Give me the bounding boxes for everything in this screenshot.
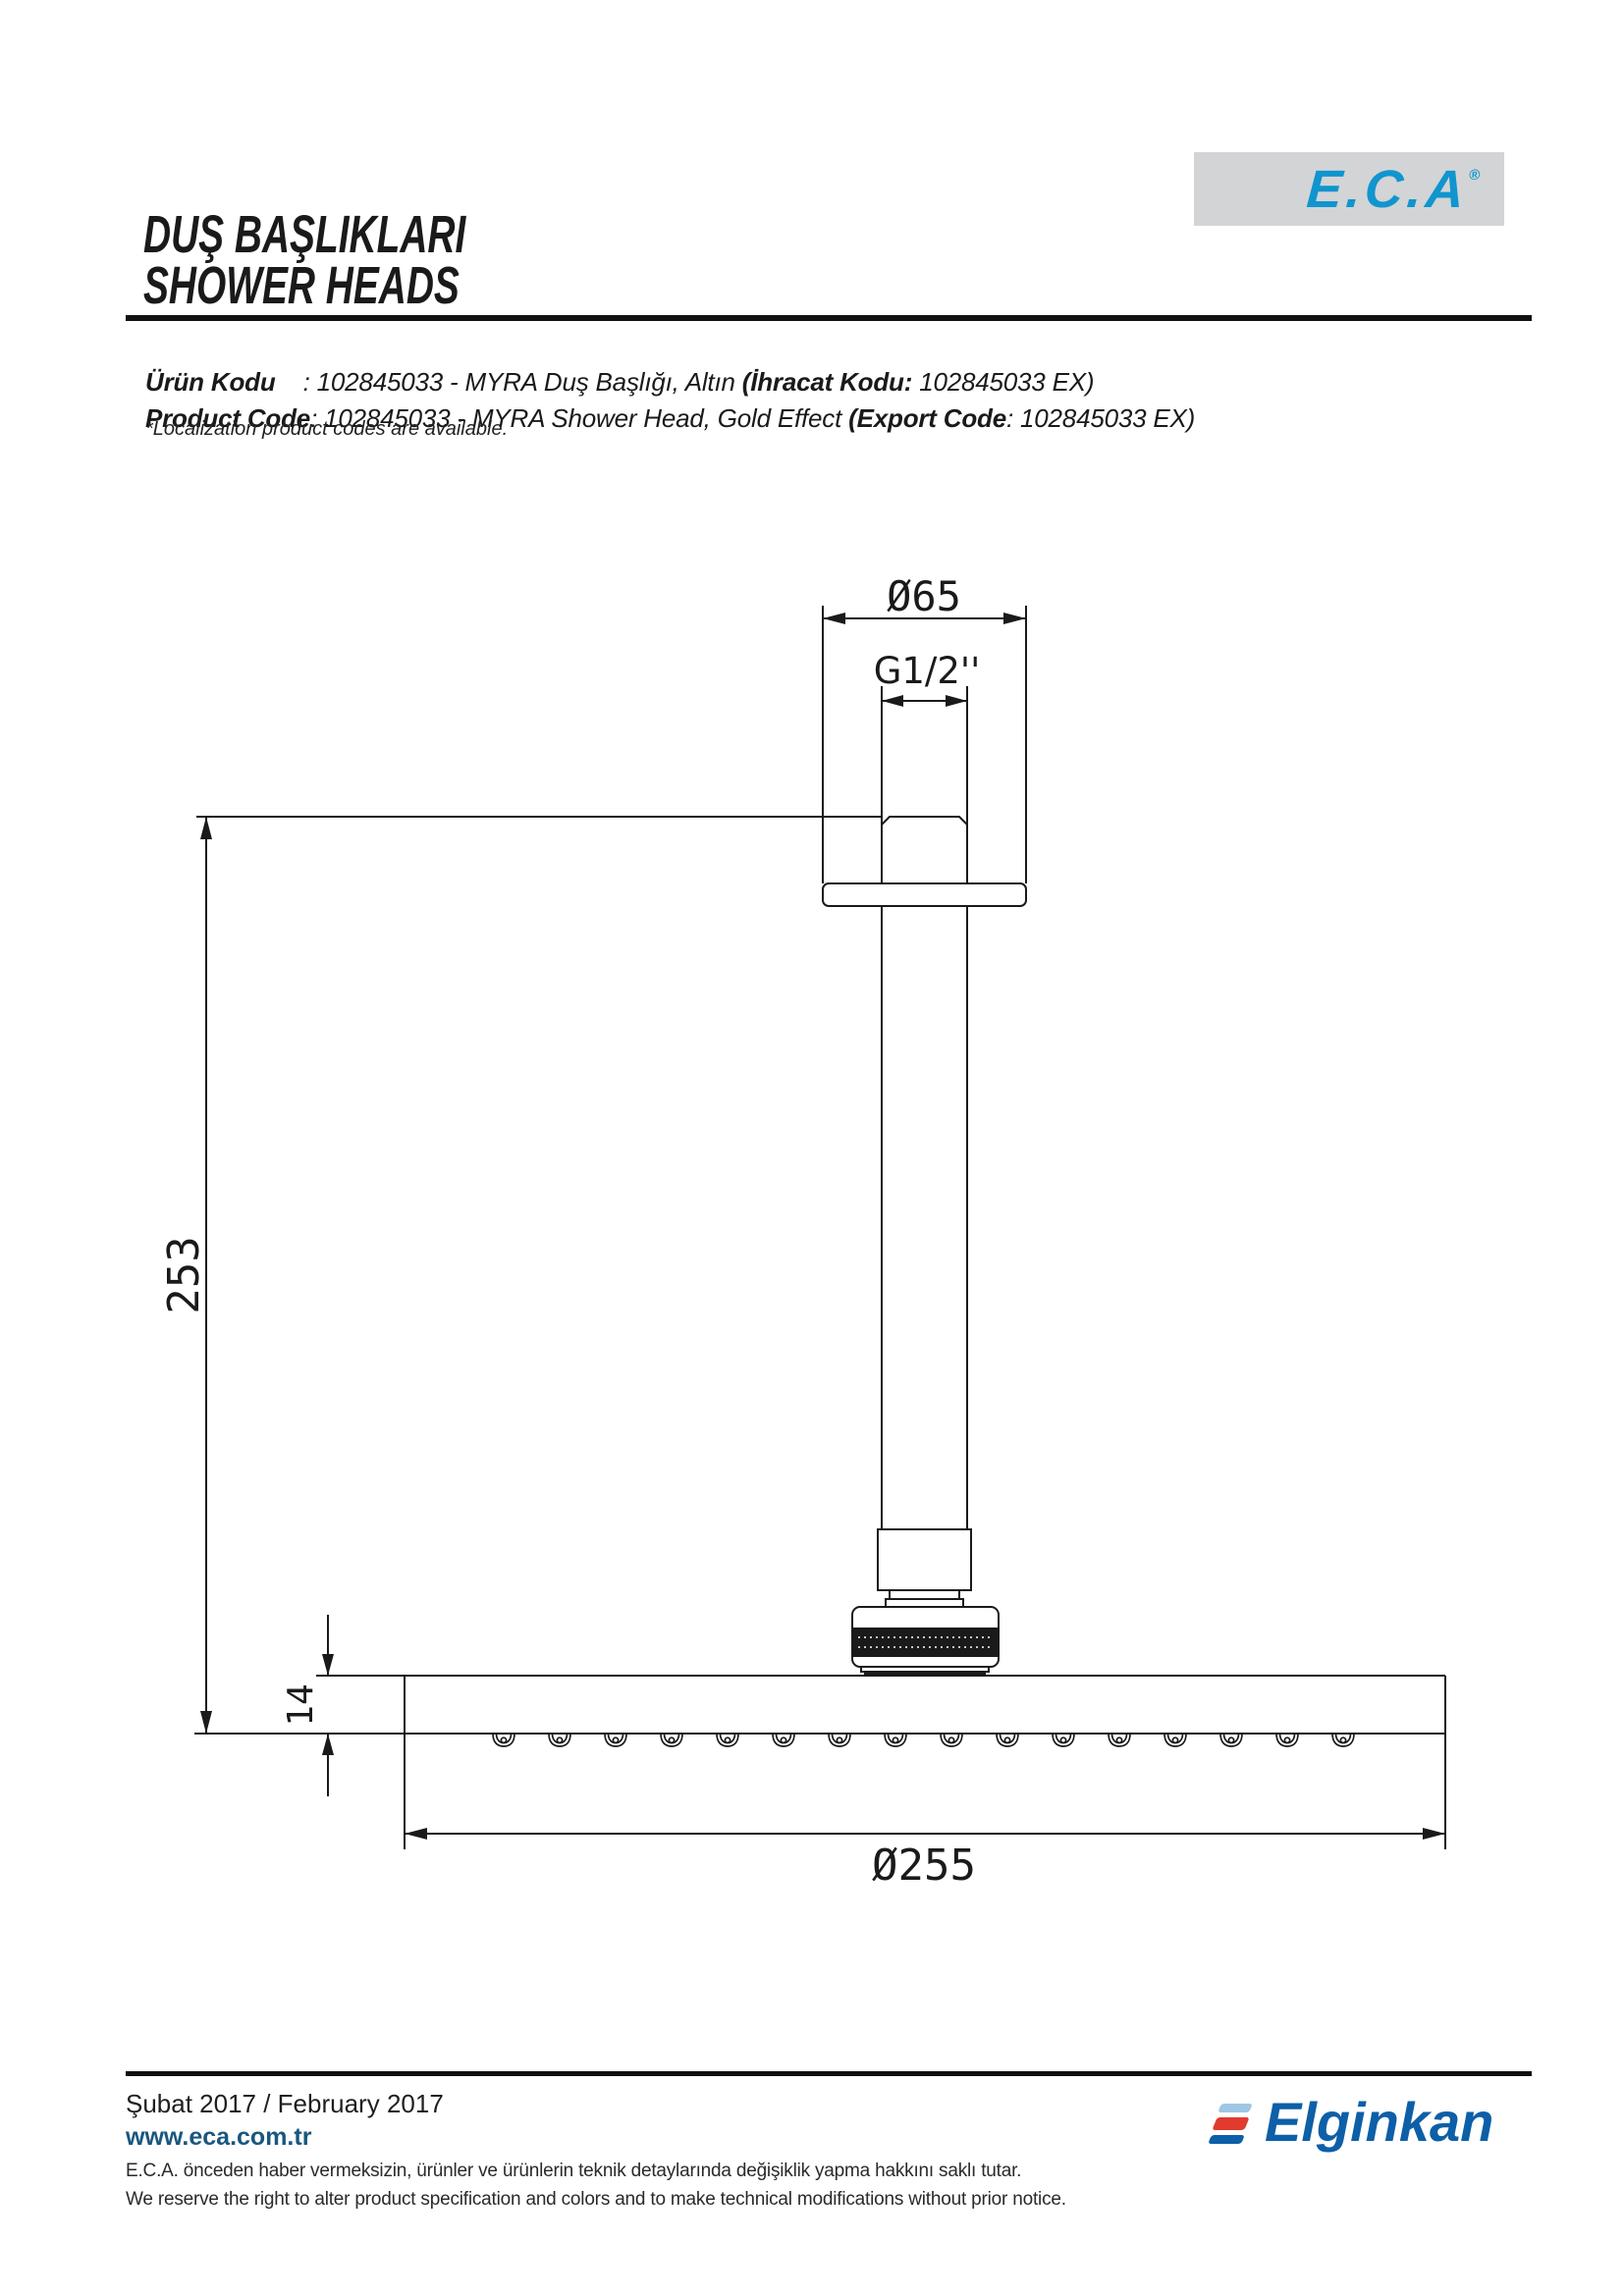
eca-logo: E.C.A®	[1194, 152, 1504, 226]
export-code-label-tr: (İhracat Kodu:	[742, 367, 912, 397]
disclaimer-turkish: E.C.A. önceden haber vermeksizin, ürünle…	[126, 2161, 1021, 2182]
registered-trademark-icon: ®	[1468, 167, 1480, 184]
export-code-label-en: (Export Code	[848, 403, 1006, 433]
eca-logo-text: E.C.A®	[1305, 163, 1481, 216]
website-link[interactable]: www.eca.com.tr	[126, 2123, 311, 2152]
ball-joint-knurled-band	[852, 1628, 999, 1657]
product-code-line-tr: Ürün Kodu : 102845033 - MYRA Duş Başlığı…	[145, 369, 1094, 395]
product-code-value-tr: : 102845033 - MYRA Duş Başlığı, Altın	[276, 367, 742, 397]
page-title-english: SHOWER HEADS	[143, 259, 460, 312]
joint-neck-ring-1	[890, 1590, 959, 1599]
connector-nut	[882, 817, 967, 883]
revision-date: Şubat 2017 / February 2017	[126, 2089, 444, 2119]
ceiling-flange	[823, 883, 1026, 906]
arm-collar	[878, 1529, 971, 1590]
page-title-turkish: DUŞ BAŞLIKLARI	[143, 208, 465, 261]
dim-label-height: 253	[159, 1236, 209, 1313]
dim-label-thread: G1/2''	[874, 650, 981, 692]
disclaimer-english: We reserve the right to alter product sp…	[126, 2189, 1066, 2211]
elginkan-logo-text: Elginkan	[1265, 2095, 1493, 2150]
technical-drawing: Ø65 G1/2''	[0, 530, 1624, 1924]
elginkan-bars-icon	[1210, 2104, 1251, 2144]
datasheet-page: DUŞ BAŞLIKLARI SHOWER HEADS E.C.A® Ürün …	[0, 0, 1624, 2296]
dim-label-head-thickness: 14	[281, 1683, 321, 1726]
ball-joint-lip	[861, 1667, 989, 1672]
export-code-value-en: : 102845033 EX)	[1006, 403, 1195, 433]
elginkan-logo: Elginkan	[1210, 2095, 1493, 2150]
export-code-value-tr: 102845033 EX)	[912, 367, 1094, 397]
ball-joint-seal	[864, 1672, 986, 1675]
nozzle-row	[493, 1734, 1354, 1746]
product-code-label-tr: Ürün Kodu	[145, 367, 276, 397]
dim-label-top-diameter: Ø65	[887, 572, 961, 620]
joint-neck-ring-2	[886, 1599, 963, 1607]
localization-note: *Localization product codes are availabl…	[145, 418, 508, 441]
header-divider	[126, 315, 1532, 321]
dim-label-head-diameter: Ø255	[872, 1841, 976, 1891]
footer-divider	[126, 2071, 1532, 2076]
